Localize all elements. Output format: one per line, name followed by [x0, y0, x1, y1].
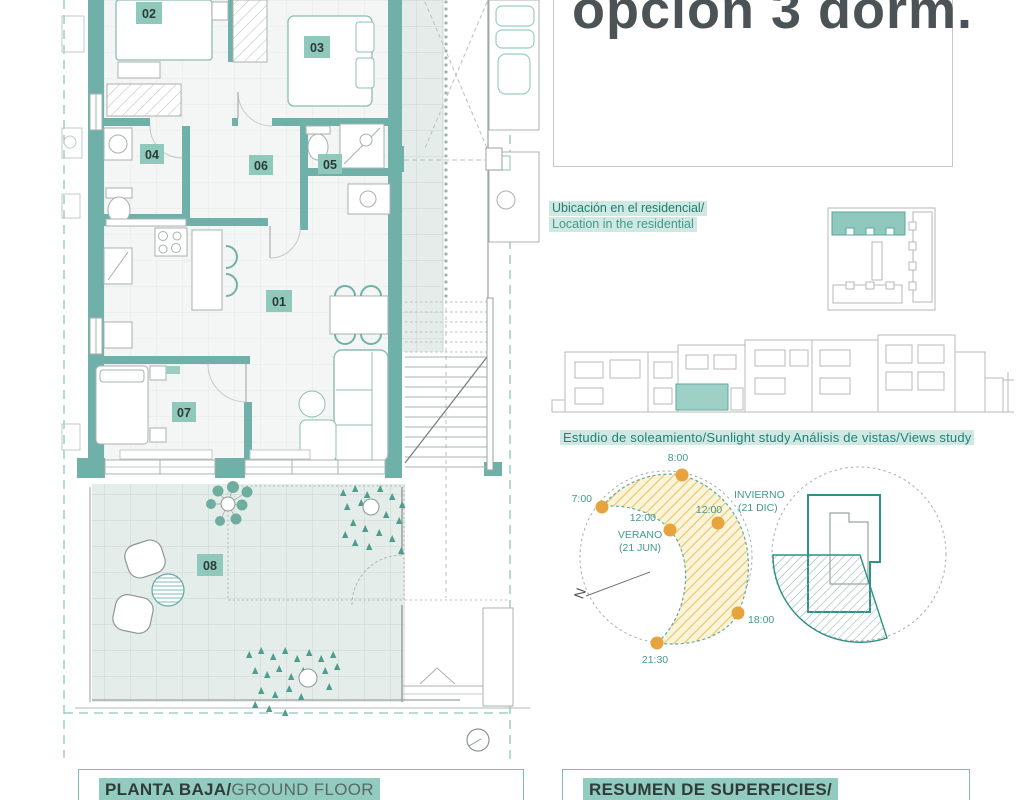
sun-path-diagram: N 8:00 7:00 12:00 VERANO (21 JUN) 12:00 … [570, 452, 784, 666]
plan-title: PLANTA BAJA/GROUND FLOOR [99, 778, 380, 800]
sun-time-2130: 21:30 [642, 654, 668, 666]
surfaces-title-text: RESUMEN DE SUPERFICIES/ [583, 778, 838, 800]
room-label-04: 04 [145, 148, 159, 162]
footer-right-box: RESUMEN DE SUPERFICIES/ [562, 769, 970, 800]
street-elevation [552, 335, 1014, 412]
context-drawings [545, 195, 1024, 435]
room-label-03: 03 [310, 41, 324, 55]
room-label-01: 01 [272, 295, 286, 309]
sun-crescent [602, 474, 748, 644]
plan-title-en: GROUND FLOOR [231, 780, 373, 799]
left-neighbor-fragments [62, 16, 84, 450]
sun-summer-name: VERANO [618, 529, 662, 541]
page-title: opción 3 dorm. [572, 0, 973, 37]
brochure-page: 01 02 03 04 05 06 07 08 opción 3 dorm. U… [0, 0, 1024, 800]
title-box: opción 3 dorm. [553, 0, 953, 167]
site-plan [828, 208, 935, 310]
room-label-05: 05 [323, 158, 337, 172]
sun-time-12-winter: 12:00 [696, 504, 722, 516]
sun-time-7: 7:00 [572, 493, 593, 505]
sun-winter-date: (21 DIC) [738, 502, 778, 514]
sun-time-12-summer: 12:00 [630, 512, 656, 524]
highlighted-unit [676, 384, 728, 410]
sun-time-8: 8:00 [668, 452, 689, 464]
study-diagrams: N 8:00 7:00 12:00 VERANO (21 JUN) 12:00 … [545, 445, 1024, 710]
room-label-08: 08 [203, 559, 217, 573]
room-label-06: 06 [254, 159, 268, 173]
sun-winter-name: INVIERNO [734, 489, 785, 501]
sun-summer-date: (21 JUN) [619, 542, 661, 554]
bottom-windows [105, 460, 385, 474]
compass-icon [467, 729, 489, 751]
footer-left-box: PLANTA BAJA/GROUND FLOOR [78, 769, 524, 800]
floor-plan: 01 02 03 04 05 06 07 08 [55, 0, 540, 762]
plan-title-es: PLANTA BAJA/ [105, 780, 231, 799]
surfaces-title: RESUMEN DE SUPERFICIES/ [583, 778, 838, 800]
room-label-07: 07 [177, 406, 191, 420]
views-diagram [772, 467, 946, 642]
room-label-02: 02 [142, 7, 156, 21]
sun-time-18: 18:00 [748, 614, 774, 626]
